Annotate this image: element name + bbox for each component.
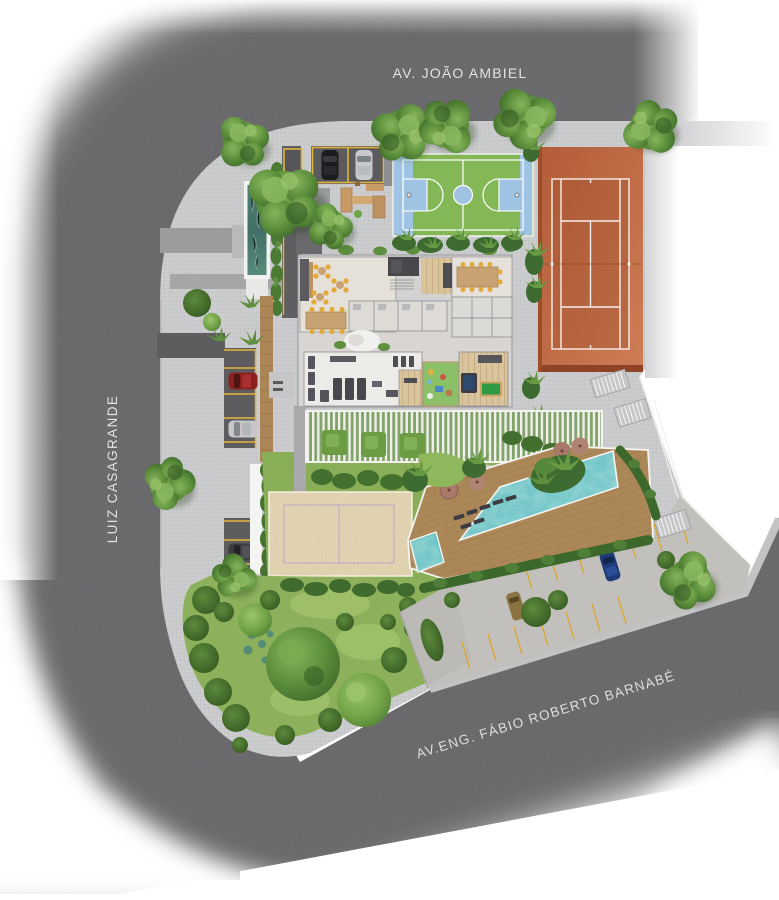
svg-text:AV. JOÃO AMBIEL: AV. JOÃO AMBIEL (393, 65, 528, 81)
svg-text:LUIZ CASAGRANDE: LUIZ CASAGRANDE (105, 395, 120, 544)
